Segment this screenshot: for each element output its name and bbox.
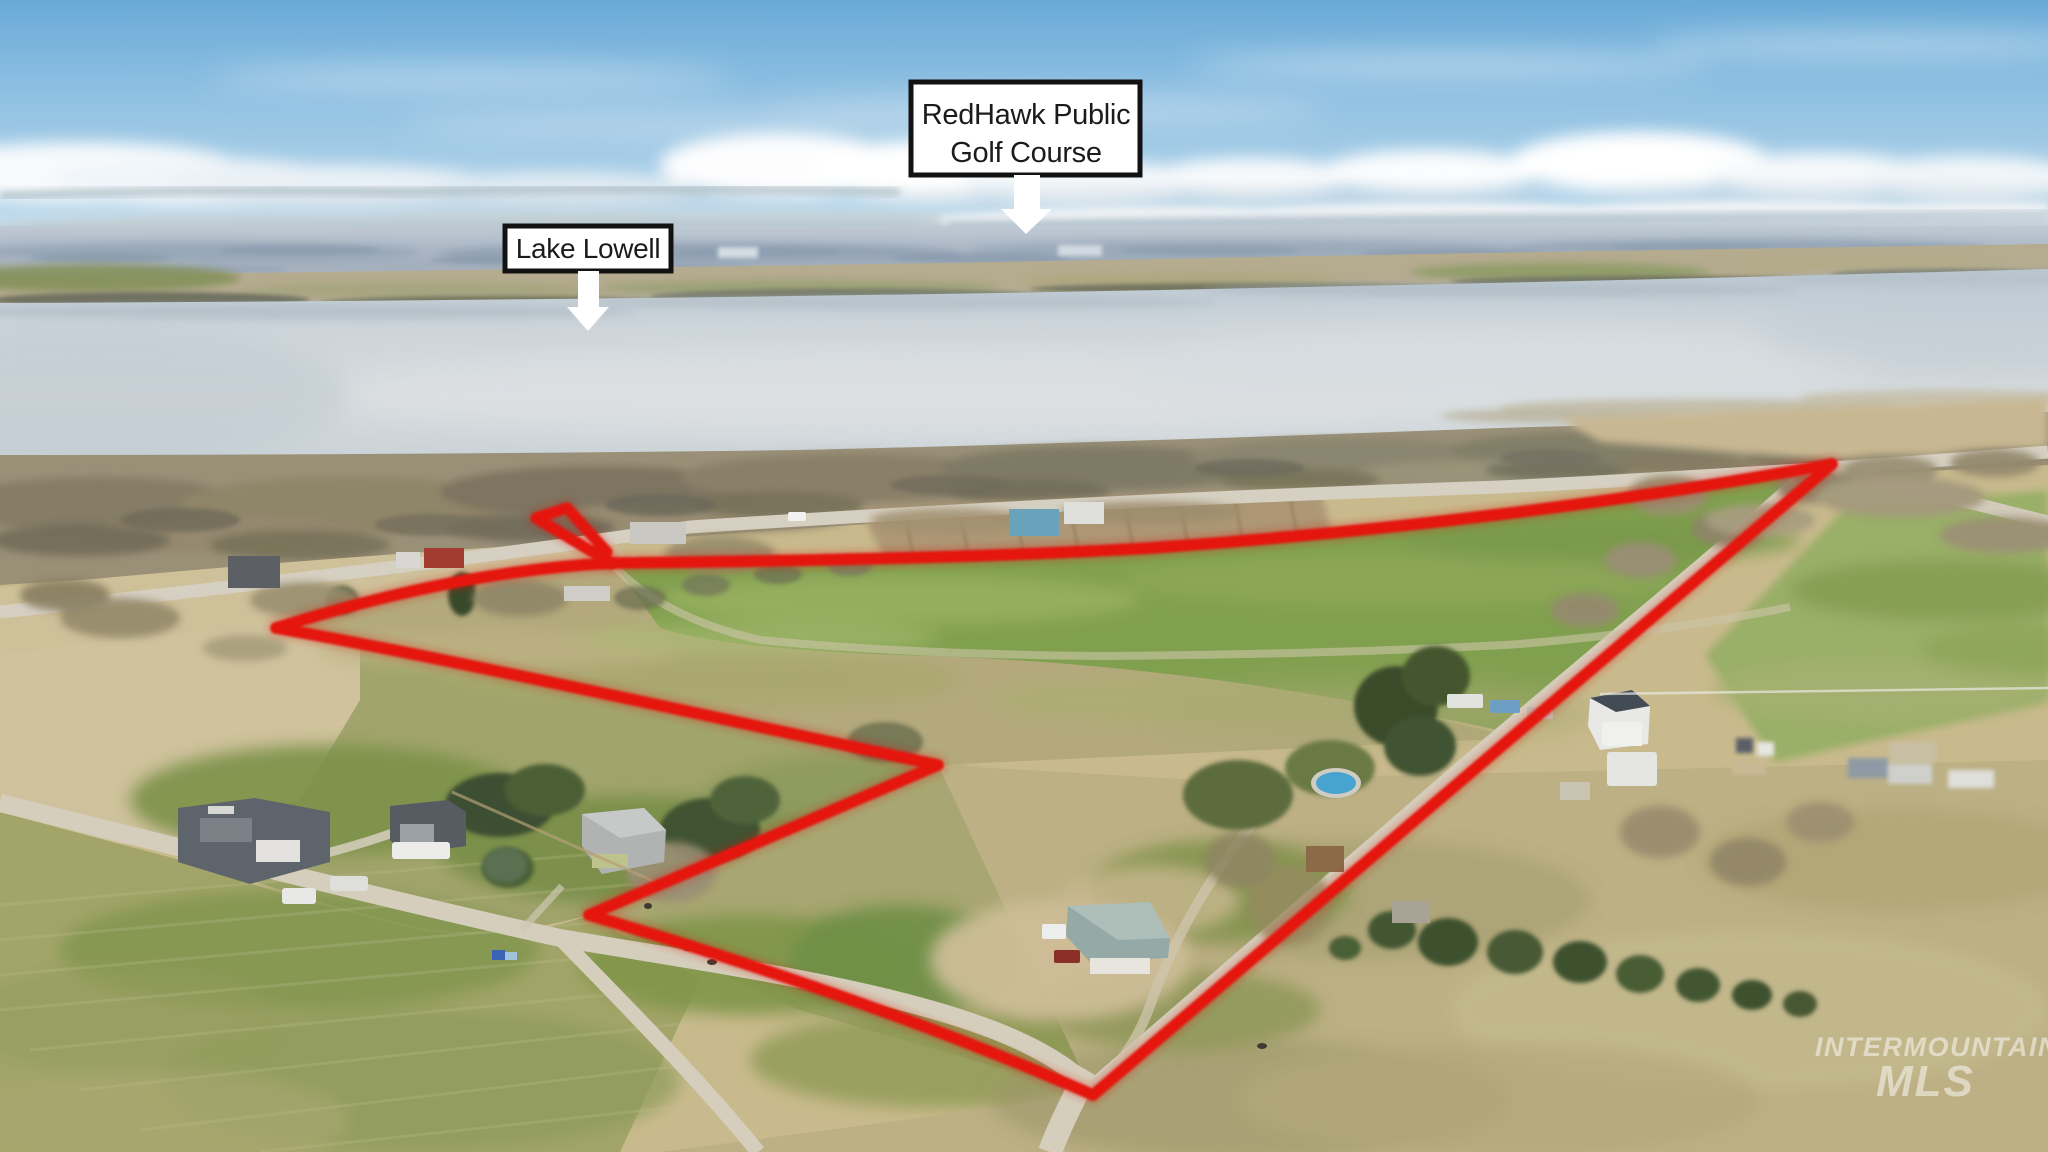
svg-text:Lake Lowell: Lake Lowell xyxy=(516,233,661,264)
svg-text:MLS: MLS xyxy=(1876,1057,1975,1106)
svg-text:Golf Course: Golf Course xyxy=(950,137,1101,169)
svg-text:RedHawk Public: RedHawk Public xyxy=(922,99,1131,131)
